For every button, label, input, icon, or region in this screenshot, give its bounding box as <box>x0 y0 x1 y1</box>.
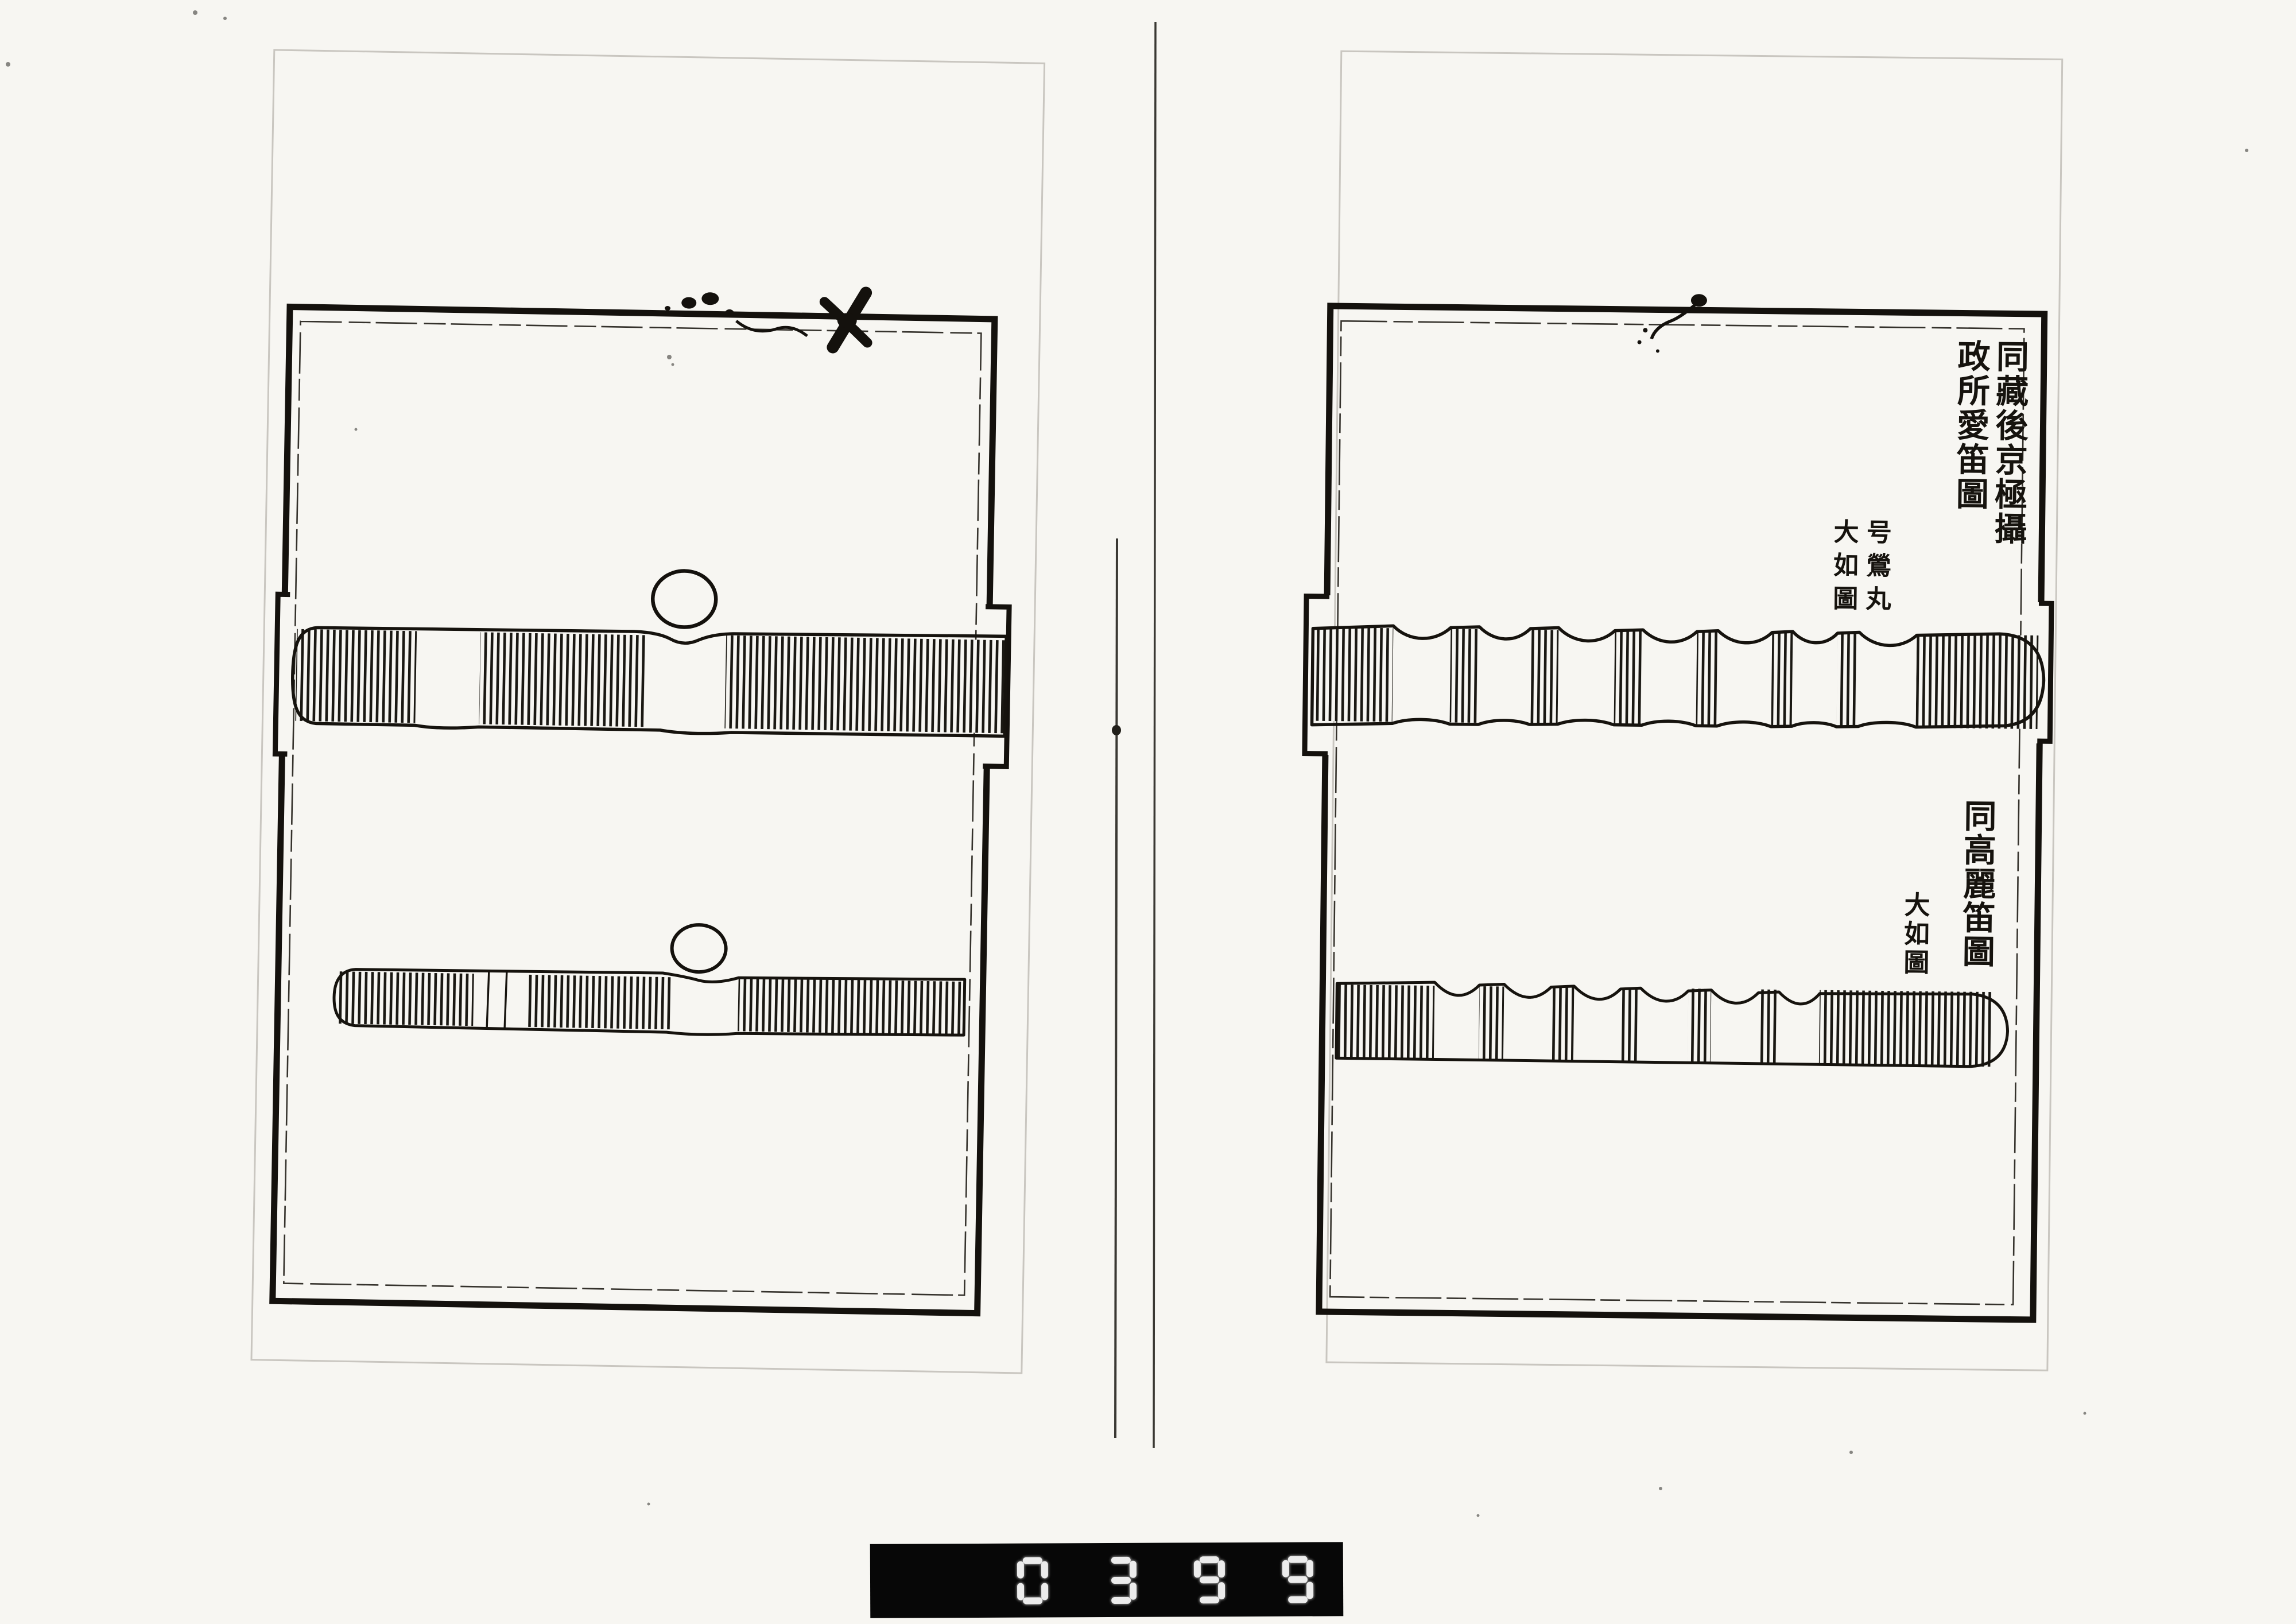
annotation-top: 号鶯丸 大如圖 <box>1826 518 1893 619</box>
scanned-book-page: 同藏後京極攝 政所愛笛圖 号鶯丸 大如圖 同高麗笛圖 大如圖 <box>0 0 2296 1617</box>
caption-top-col2: 政所愛笛圖 <box>1950 339 1991 546</box>
right-page-captions: 同藏後京極攝 政所愛笛圖 号鶯丸 大如圖 同高麗笛圖 大如圖 <box>0 0 2296 1624</box>
annotation-top-col1: 号鶯丸 <box>1859 518 1893 619</box>
annotation-top-col2: 大如圖 <box>1826 518 1860 619</box>
caption-bottom: 同高麗笛圖 <box>1957 799 1998 968</box>
counter-digit <box>1017 1557 1048 1604</box>
annotation-bottom: 大如圖 <box>1897 891 1932 978</box>
caption-top-col1: 同藏後京極攝 <box>1988 339 2029 546</box>
counter-digit <box>1194 1556 1225 1603</box>
counter-digit <box>1106 1557 1137 1604</box>
counter-bar <box>870 1542 1344 1618</box>
counter-digits <box>1017 1556 1313 1604</box>
counter-digit <box>1282 1556 1313 1603</box>
caption-top: 同藏後京極攝 政所愛笛圖 <box>1950 339 2030 546</box>
